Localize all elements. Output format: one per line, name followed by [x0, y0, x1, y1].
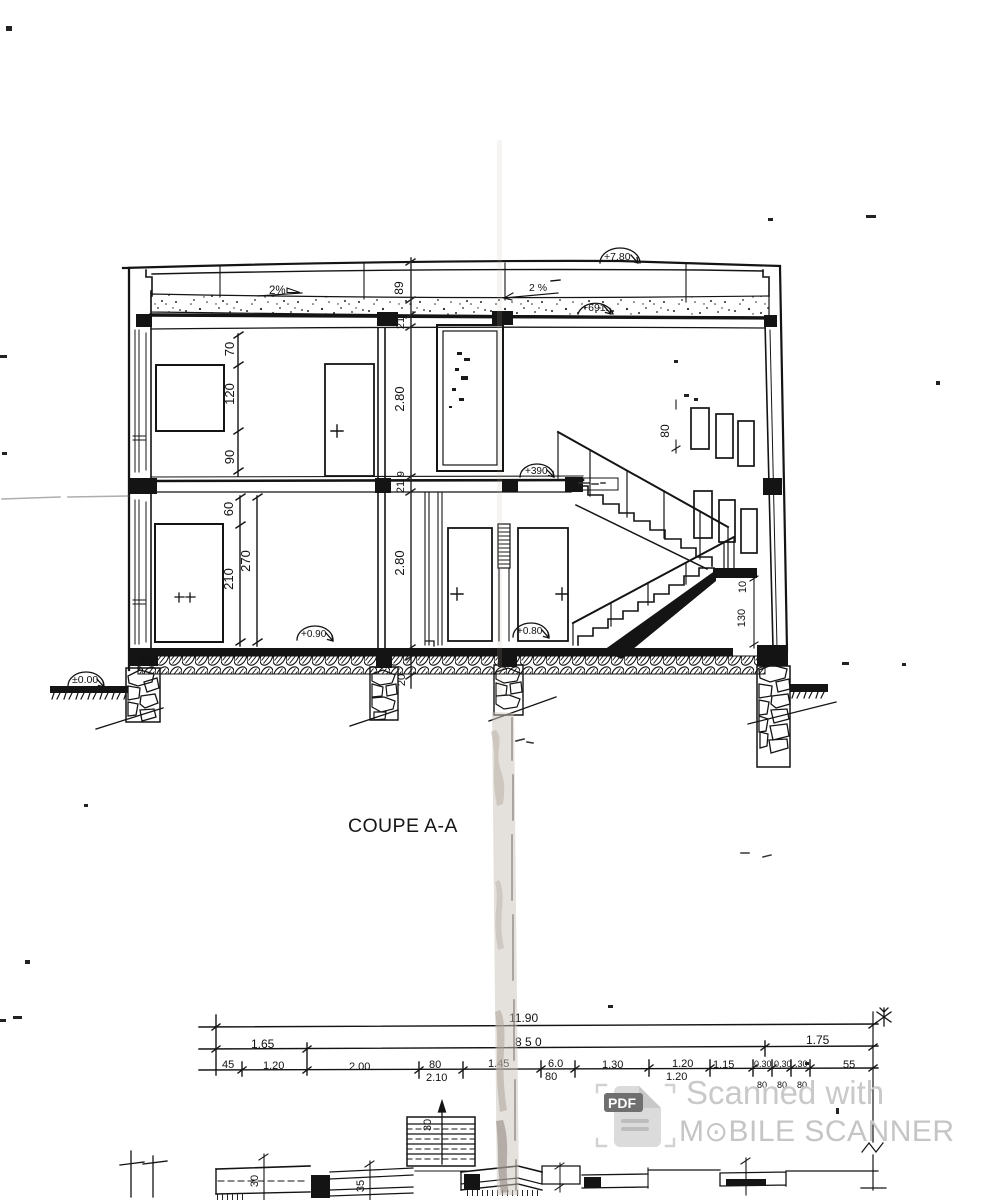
svg-text:6.0: 6.0 — [548, 1058, 563, 1070]
svg-text:210: 210 — [221, 568, 236, 590]
svg-text:1.75: 1.75 — [806, 1033, 830, 1047]
svg-text:55: 55 — [843, 1059, 855, 1071]
svg-text:120: 120 — [222, 383, 237, 405]
svg-text:2.10: 2.10 — [426, 1072, 447, 1084]
svg-text:Scanned with: Scanned with — [686, 1074, 884, 1111]
svg-text:30: 30 — [422, 1119, 434, 1131]
svg-text:80: 80 — [545, 1071, 557, 1083]
svg-text:1.65: 1.65 — [251, 1037, 275, 1051]
svg-text:270: 270 — [238, 550, 253, 572]
svg-text:8 5 0: 8 5 0 — [515, 1035, 542, 1049]
svg-text:9: 9 — [396, 471, 407, 477]
svg-text:21: 21 — [395, 481, 407, 493]
svg-text:2.00: 2.00 — [349, 1061, 370, 1073]
svg-text:PDF: PDF — [608, 1095, 636, 1111]
svg-text:1.20: 1.20 — [672, 1058, 693, 1070]
svg-text:70: 70 — [222, 342, 237, 356]
svg-text:1.30: 1.30 — [602, 1059, 623, 1071]
svg-text:M⊙BILE SCANNER: M⊙BILE SCANNER — [679, 1115, 955, 1148]
svg-text:2.80: 2.80 — [392, 550, 407, 575]
svg-text:10: 10 — [737, 581, 749, 593]
svg-text:35: 35 — [355, 1180, 367, 1192]
svg-text:+0.80: +0.80 — [517, 626, 543, 637]
svg-text:80: 80 — [429, 1059, 441, 1071]
svg-text:±0.00: ±0.00 — [72, 674, 98, 686]
svg-text:COUPE A-A: COUPE A-A — [348, 815, 458, 837]
svg-text:1.20: 1.20 — [666, 1071, 687, 1083]
svg-text:45: 45 — [222, 1059, 234, 1071]
svg-text:0,30: 0,30 — [774, 1059, 792, 1069]
svg-text:90: 90 — [222, 450, 237, 464]
svg-text:60: 60 — [221, 502, 236, 516]
svg-text:+691.: +691. — [582, 302, 609, 314]
svg-text:+390: +390 — [525, 466, 548, 477]
svg-text:0.30: 0.30 — [754, 1059, 772, 1069]
svg-text:+0.90: +0.90 — [301, 629, 327, 640]
svg-text:1.20: 1.20 — [263, 1060, 284, 1072]
svg-text:80: 80 — [658, 424, 672, 438]
svg-text:130: 130 — [736, 609, 748, 627]
svg-text:89: 89 — [392, 281, 406, 295]
svg-text:2 %: 2 % — [529, 282, 547, 294]
svg-text:+7.80: +7.80 — [604, 251, 631, 263]
svg-text:2.80: 2.80 — [392, 386, 407, 411]
svg-text:1.15: 1.15 — [713, 1059, 734, 1071]
svg-text:21: 21 — [395, 317, 407, 329]
svg-text:30: 30 — [249, 1175, 261, 1187]
